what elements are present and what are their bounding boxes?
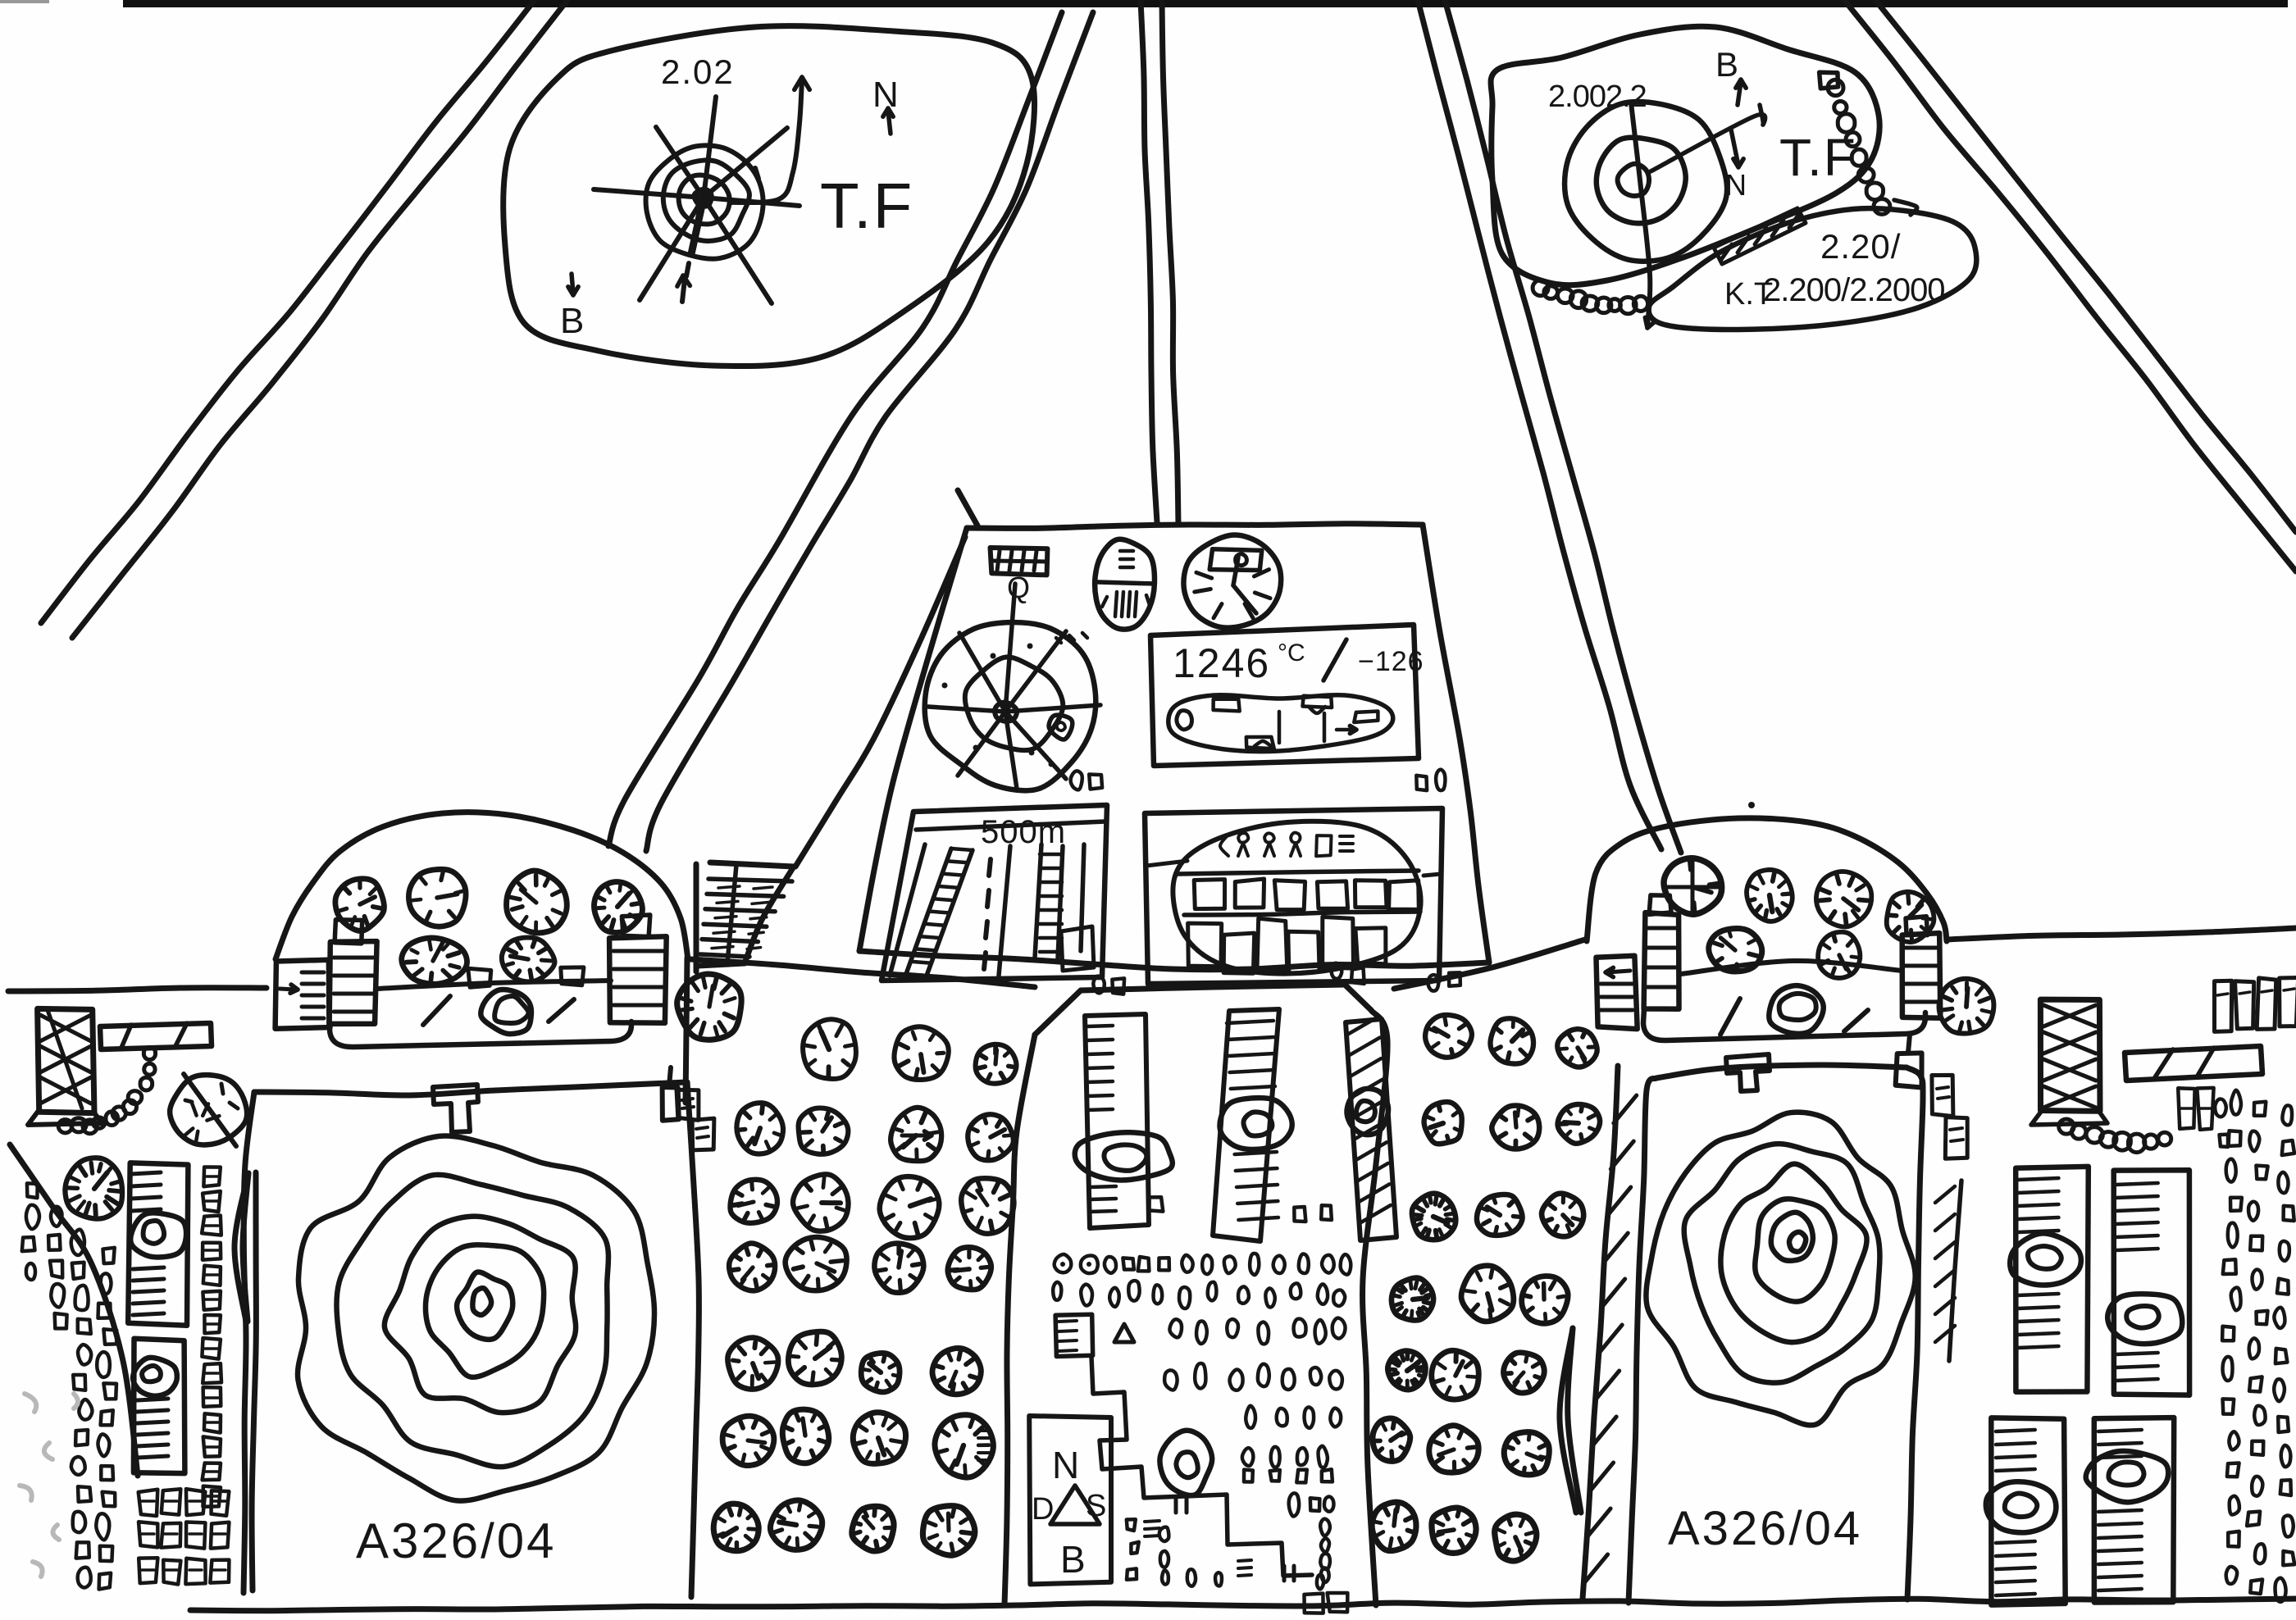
svg-text:A326/04: A326/04 — [356, 1513, 557, 1568]
svg-text:D: D — [1032, 1492, 1054, 1527]
svg-text:S: S — [1086, 1489, 1106, 1523]
svg-text:Q: Q — [1007, 571, 1030, 604]
svg-text:N: N — [1052, 1444, 1079, 1486]
svg-text:°C: °C — [1278, 639, 1305, 667]
svg-text:N: N — [1725, 168, 1747, 202]
svg-text:B: B — [560, 301, 584, 341]
svg-text:−126: −126 — [1358, 646, 1424, 677]
svg-text:1246: 1246 — [1173, 640, 1270, 686]
svg-text:B: B — [1715, 45, 1738, 84]
svg-text:500m: 500m — [981, 814, 1066, 850]
svg-text:2.200/2.2000: 2.200/2.2000 — [1763, 272, 1945, 308]
svg-text:T.F: T.F — [820, 170, 913, 242]
svg-text:A326/04: A326/04 — [1668, 1502, 1862, 1555]
svg-text:B: B — [1060, 1538, 1086, 1581]
svg-text:2.02: 2.02 — [661, 52, 735, 91]
svg-text:2.20/: 2.20/ — [1820, 227, 1901, 266]
